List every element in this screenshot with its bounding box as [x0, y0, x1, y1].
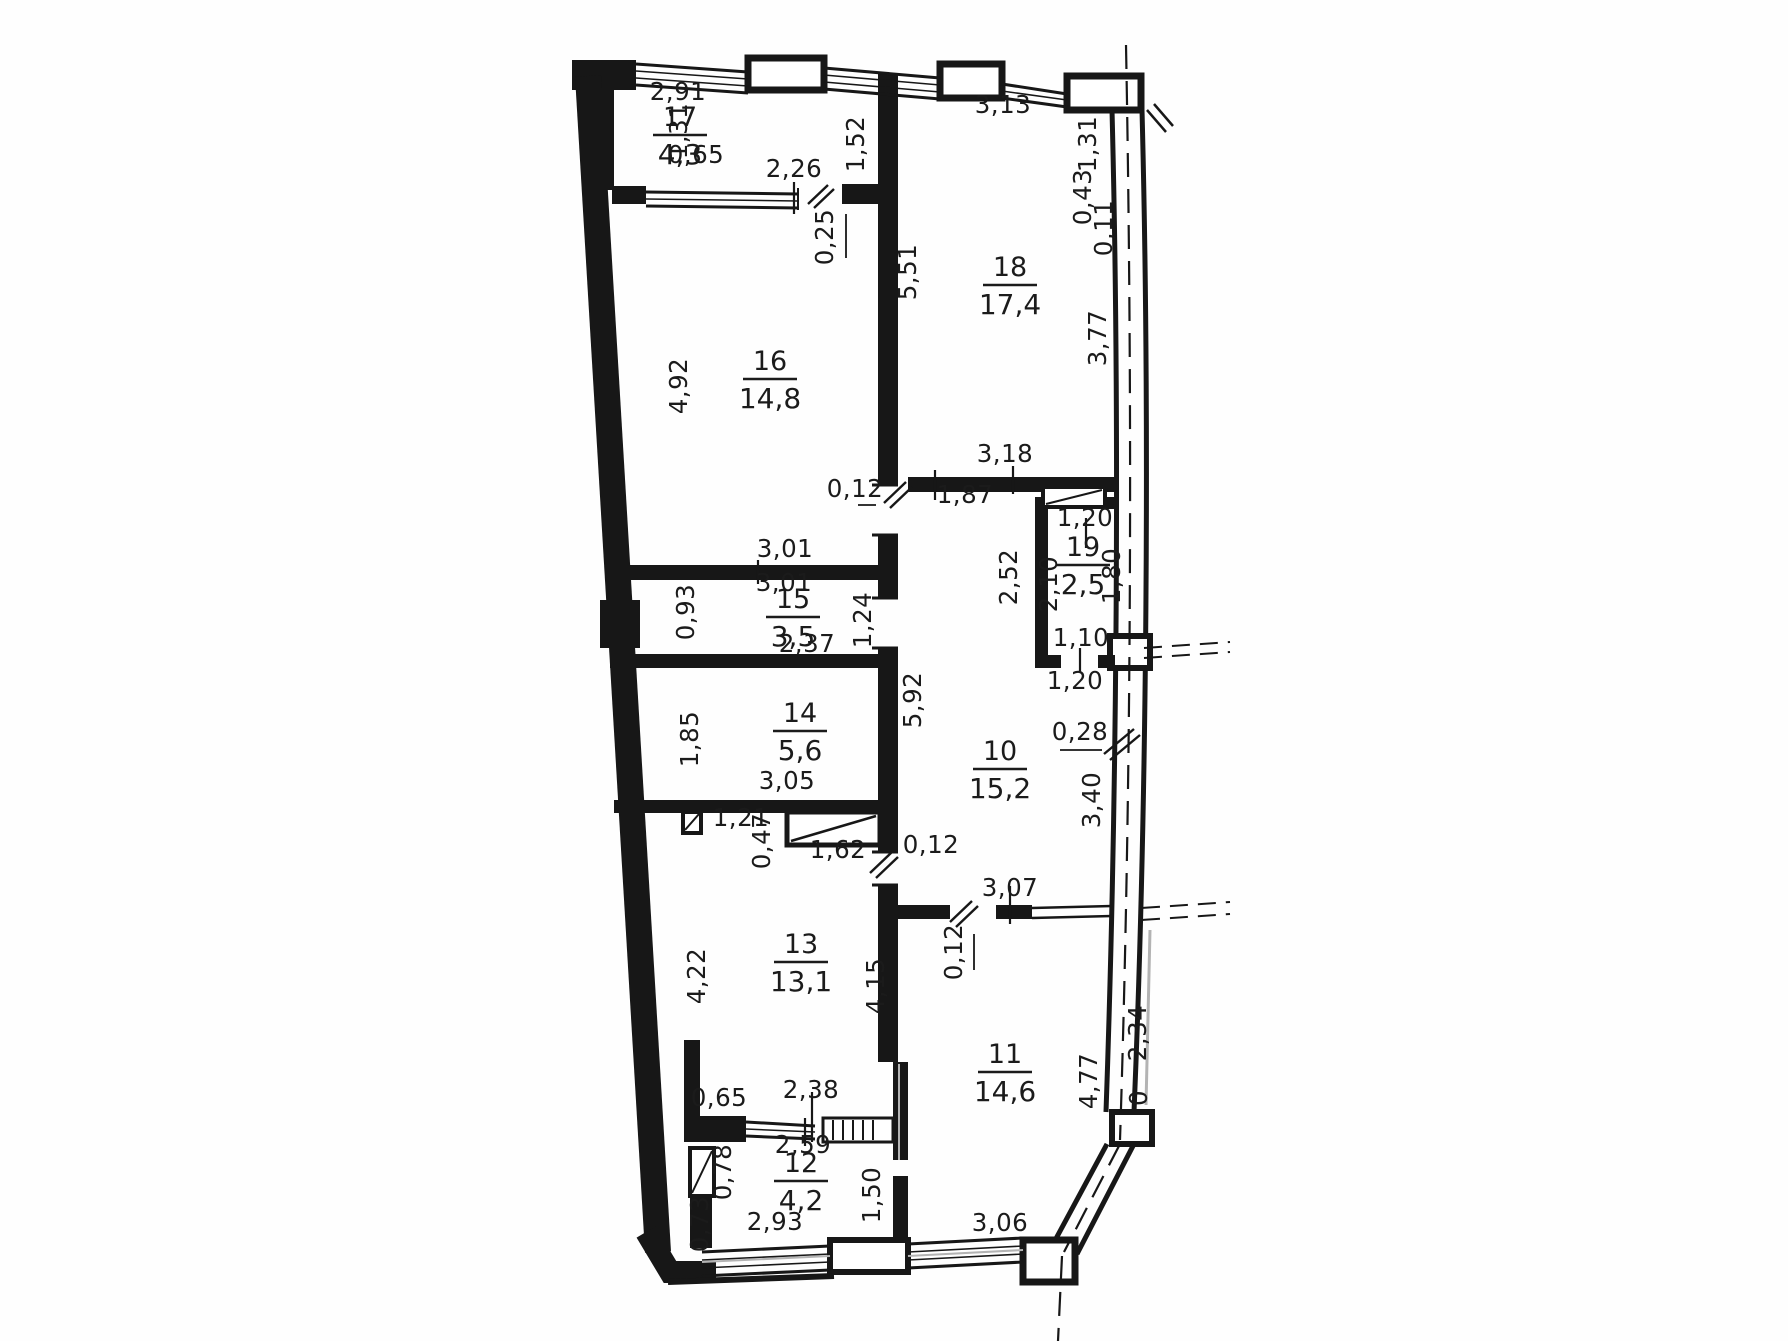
- neighbor-loggia-dashed: [1142, 902, 1230, 908]
- room-label-18: 1817,4: [979, 252, 1041, 321]
- dimension-label: 0,12: [939, 924, 968, 981]
- outer-wall-notch: [600, 600, 640, 648]
- dimension-label: 3,18: [977, 439, 1034, 468]
- dimension-label: 3,01: [756, 568, 813, 597]
- wall-room10-room11-thin: [1032, 906, 1112, 908]
- dimension-label: 2,52: [994, 549, 1023, 606]
- floor-plan-drawing: 174,31817,41614,8153,5192,5145,61015,213…: [0, 0, 1788, 1341]
- room-label-11: 1114,6: [974, 1039, 1036, 1108]
- dimension-label: 1,24: [848, 592, 877, 649]
- dimension-label: 0,28: [1052, 717, 1109, 746]
- top-right-pier: [1067, 76, 1141, 110]
- dimension-label: 4,15: [861, 958, 890, 1015]
- window: [908, 1238, 1023, 1244]
- dimension-label: 2,91: [650, 77, 707, 106]
- dimension-label: 2,34: [1123, 1005, 1152, 1062]
- window: [702, 1246, 830, 1252]
- facade-axis-dashed: [1064, 1144, 1120, 1252]
- window: [646, 192, 798, 194]
- dimension-label: 0,73: [685, 1196, 714, 1253]
- bottom-wall-pier: [830, 1240, 908, 1272]
- room-number: 11: [988, 1039, 1022, 1070]
- facade-wall-outer-low: [1077, 1144, 1134, 1254]
- room17-bottom-wall: [612, 186, 646, 204]
- dimension-label: 0,47: [747, 813, 776, 870]
- wall-room12-room11: [893, 1062, 908, 1160]
- dimension-label: 0,12: [903, 830, 960, 859]
- room-area: 17,4: [979, 288, 1041, 321]
- room17-left-wall: [600, 88, 614, 190]
- window: [702, 1262, 830, 1268]
- dimension-label: 1,20: [1047, 666, 1104, 695]
- room-area: 14,6: [974, 1075, 1036, 1108]
- door-slash: [870, 852, 892, 873]
- facade-pillar: [1112, 1112, 1152, 1144]
- dimension-label: 4,22: [682, 948, 711, 1005]
- dimension-label: 5,92: [898, 672, 927, 729]
- room-number: 10: [983, 736, 1017, 767]
- dimension-label: 4,77: [1074, 1053, 1103, 1110]
- room-area: 13,1: [770, 965, 832, 998]
- wall-room10-room11: [898, 905, 950, 919]
- dimension-label: 1,50: [857, 1167, 886, 1224]
- dimension-label: 0,11: [1089, 200, 1118, 257]
- dimension-label: 1,52: [841, 116, 870, 173]
- dimension-label: 0,93: [671, 584, 700, 641]
- dimension-label: 0,78: [708, 1144, 737, 1201]
- room-area: 15,2: [969, 772, 1031, 805]
- facade-wall-inner-low: [1052, 1144, 1107, 1246]
- dimension-label: 2,26: [766, 154, 823, 183]
- neighbor-loggia-dashed: [1144, 652, 1230, 658]
- dimension-label: 1,87: [937, 480, 994, 509]
- dimension-label: 4,92: [664, 358, 693, 415]
- dimension-label: 0,65: [668, 140, 725, 169]
- room-number: 13: [784, 929, 818, 960]
- window: [908, 1262, 1023, 1268]
- room-number: 18: [993, 252, 1027, 283]
- facade-wall-inner: [1106, 110, 1117, 1112]
- dimension-label: 3,77: [1083, 310, 1112, 367]
- room-area: 14,8: [739, 382, 801, 415]
- dimension-label: 2,37: [779, 629, 836, 658]
- neighbor-loggia-dashed: [1144, 642, 1230, 648]
- door-slash: [814, 189, 834, 208]
- spine-wall: [878, 535, 898, 598]
- room-label-13: 1313,1: [770, 929, 832, 998]
- room-label-16: 1614,8: [739, 346, 801, 415]
- wall-room16-room15: [608, 565, 880, 580]
- wall-room15-room14: [610, 654, 880, 668]
- dimension-label: 2,93: [747, 1207, 804, 1236]
- wall-room10-room11: [996, 905, 1032, 919]
- dimension-label: 1,10: [1053, 623, 1110, 652]
- dimension-label: 1,80: [1097, 548, 1126, 605]
- dimension-label: 1,20: [1057, 503, 1114, 532]
- room-area: 5,6: [778, 734, 823, 767]
- dimension-label: 3,06: [972, 1208, 1029, 1237]
- dimension-label: 3,07: [982, 873, 1039, 902]
- facade-wall-outer: [1134, 110, 1146, 1112]
- dimension-label: 3,01: [757, 534, 814, 563]
- door-slash: [808, 185, 828, 204]
- dimension-label: 0: [1124, 1090, 1153, 1106]
- scanned-floor-plan-page: 174,31817,41614,8153,5192,5145,61015,213…: [0, 0, 1788, 1341]
- window: [636, 64, 748, 72]
- top-wall-pier: [748, 58, 824, 90]
- dimension-label: 1,85: [675, 711, 704, 768]
- room-label-14: 145,6: [773, 698, 827, 767]
- room17-bottom-wall: [842, 184, 880, 204]
- neighbor-loggia-dashed: [1142, 914, 1230, 920]
- room-label-10: 1015,2: [969, 736, 1031, 805]
- dimension-label: 2,38: [783, 1075, 840, 1104]
- dimension-label: 2,10: [1034, 556, 1063, 613]
- dimension-label: 0,12: [827, 474, 884, 503]
- room12-corner-stub: [684, 1116, 746, 1142]
- dimension-label: 3,05: [759, 766, 816, 795]
- door-slash: [950, 901, 972, 922]
- door-slash: [876, 857, 898, 878]
- dimension-label: 3,40: [1077, 772, 1106, 829]
- dimension-label: 5,51: [893, 244, 922, 301]
- wall-room10-room11-thin: [1032, 916, 1112, 918]
- dimension-label: 1,31: [1073, 116, 1102, 173]
- room-number: 14: [783, 698, 817, 729]
- door-slash: [890, 487, 912, 508]
- dimension-label: 3,13: [975, 90, 1032, 119]
- window: [646, 199, 798, 201]
- dimension-label: 0,25: [810, 209, 839, 266]
- window: [646, 206, 798, 208]
- room-number: 19: [1066, 532, 1100, 563]
- dimension-label: 1,62: [810, 835, 867, 864]
- room-number: 16: [753, 346, 787, 377]
- dimension-label: 0,65: [691, 1083, 748, 1112]
- dimension-label: 2,59: [775, 1130, 832, 1159]
